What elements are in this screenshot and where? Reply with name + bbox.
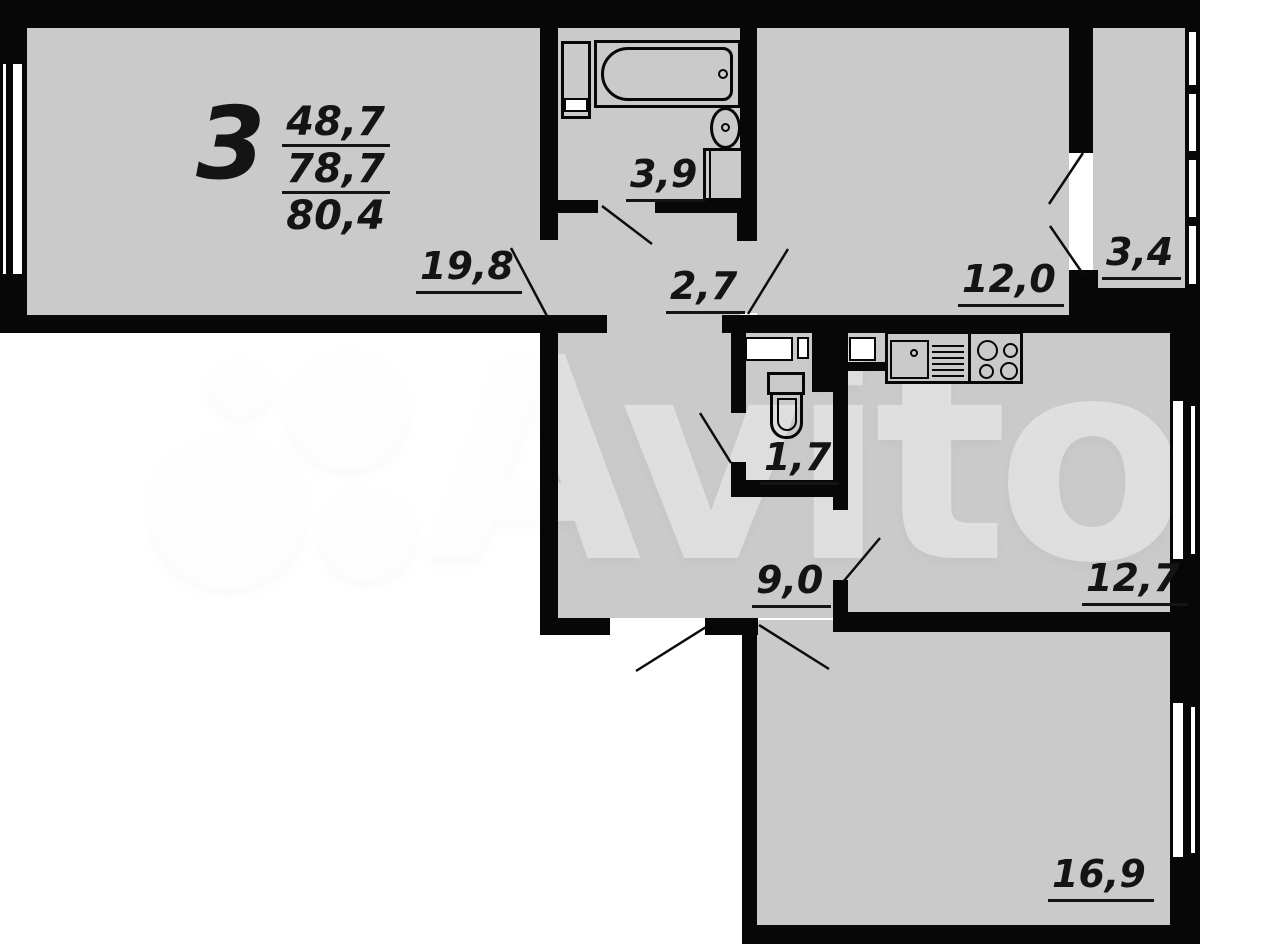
door-swing-entrance [636,627,706,671]
area-living: 48,7 [282,100,390,147]
door-swing-bedroom [748,249,788,314]
door-swing-lines [0,0,1280,944]
room-label-bedroom2: 16,9 [1048,852,1154,902]
door-swing-bathroom [602,206,652,244]
title-room-count: 3 [196,96,266,191]
area-total: 80,4 [282,194,390,238]
area-no-balcony: 78,7 [282,147,390,194]
floor-plan: Avito [0,0,1280,944]
apartment-title-block: 3 48,7 78,7 80,4 [196,96,390,238]
door-swing-loggia [1049,153,1083,204]
room-label-living-room: 19,8 [416,244,522,294]
title-areas: 48,7 78,7 80,4 [282,100,390,238]
room-label-loggia: 3,4 [1102,230,1181,280]
door-swing-bedroom2 [759,625,829,669]
room-label-bedroom: 12,0 [958,257,1064,307]
room-label-wc: 1,7 [760,435,839,485]
room-label-corridor: 2,7 [666,264,745,314]
door-swing-wc [700,413,731,463]
door-swing-kitchen [843,538,880,582]
room-label-hallway: 9,0 [752,558,831,608]
room-label-bathroom: 3,9 [626,152,705,202]
room-label-kitchen: 12,7 [1082,556,1188,606]
